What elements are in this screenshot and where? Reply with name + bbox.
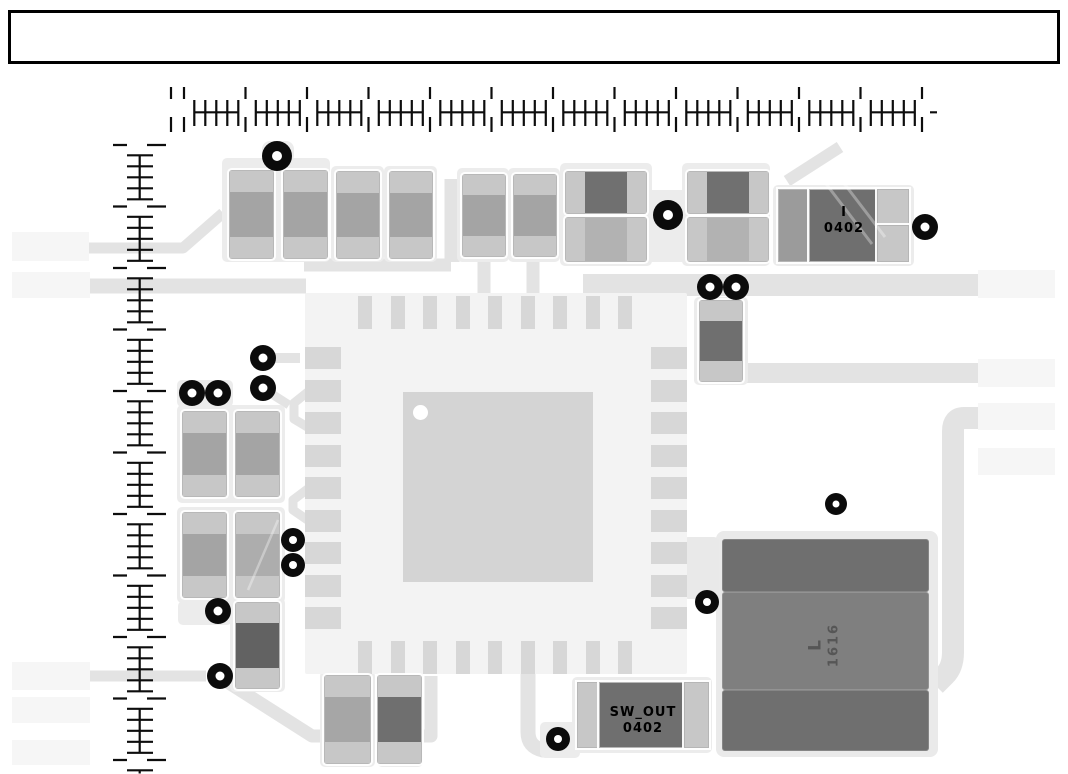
chip-cap-c4: [390, 172, 432, 258]
body: [337, 193, 379, 237]
ic-pad-bottom: [423, 641, 437, 674]
ic-pin1-marker: [413, 405, 428, 420]
chip-cap-ls1: [236, 603, 279, 688]
body: [707, 172, 749, 213]
pad: [627, 218, 646, 261]
pad: [284, 237, 327, 258]
ic-pad-right: [651, 607, 687, 629]
trace-left-1: [89, 213, 223, 248]
via: [205, 380, 231, 406]
body: [236, 534, 279, 576]
via: [281, 553, 305, 577]
via-hole: [706, 283, 715, 292]
ic-pad-left: [305, 380, 341, 402]
right-pad-block-3: [978, 403, 1055, 430]
body: [514, 195, 556, 236]
comp-i-right-pad-1: [878, 190, 908, 225]
body: [183, 433, 226, 475]
left-pad-block-4: [12, 697, 90, 723]
via: [653, 200, 683, 230]
pad: [230, 237, 273, 258]
via-hole: [921, 223, 930, 232]
component-label-inductor-1616: L 1616: [805, 623, 843, 667]
inductor-pad-bottom: [722, 690, 929, 751]
via: [825, 493, 847, 515]
body: [463, 195, 505, 236]
chip-cap-c1: [230, 171, 273, 258]
chip-cap-l2a: [183, 513, 226, 597]
ic-pad-left: [305, 412, 341, 434]
ic-pad-left: [305, 445, 341, 467]
label-line: SW_OUT: [610, 705, 677, 721]
pad: [337, 237, 379, 258]
pad: [700, 361, 742, 381]
ic-die-body: [403, 392, 593, 582]
pad: [236, 603, 279, 623]
ic-pad-right: [651, 477, 687, 499]
via-hole: [188, 389, 197, 398]
ic-pad-right: [651, 412, 687, 434]
chip-cap-l1a: [183, 412, 226, 496]
label-line: 0402: [824, 221, 864, 237]
ic-pad-right: [651, 445, 687, 467]
ic-pad-right: [651, 347, 687, 369]
ic-pad-top: [618, 296, 632, 329]
via: [262, 141, 292, 171]
pad: [236, 668, 279, 688]
right-pad-block-1: [978, 270, 1055, 298]
body: [390, 193, 432, 237]
inductor-pad-top: [722, 539, 929, 592]
chip-cap-v1: [700, 301, 742, 381]
pad: [700, 301, 742, 321]
pad: [236, 412, 279, 433]
comp-i-right-pad-2: [878, 226, 908, 261]
body: [284, 192, 327, 237]
via-hole: [732, 283, 741, 292]
ruler-vertical: [113, 145, 166, 774]
via: [912, 214, 938, 240]
ic-pad-left: [305, 575, 341, 597]
sw-out-right-pad: [685, 683, 708, 747]
ic-pad-bottom: [391, 641, 405, 674]
ic-pad-top: [553, 296, 567, 329]
pad: [688, 172, 707, 213]
chip-cap-l2b: [236, 513, 279, 597]
pad: [325, 742, 370, 763]
pad: [749, 172, 768, 213]
left-pad-block-2: [12, 272, 90, 298]
pad: [514, 236, 556, 256]
pad: [378, 742, 421, 763]
via: [695, 590, 719, 614]
pad: [236, 475, 279, 496]
right-pad-block-2: [978, 359, 1055, 387]
comp-i-left-pad: [779, 190, 810, 261]
via: [207, 663, 233, 689]
pad: [688, 218, 707, 261]
pad: [514, 175, 556, 195]
ic-pad-right: [651, 542, 687, 564]
via: [281, 528, 305, 552]
label-line: 0402: [610, 721, 677, 737]
pad: [463, 175, 505, 195]
chip-res-h4: [688, 218, 768, 261]
via: [205, 598, 231, 624]
label-line: L: [805, 639, 826, 651]
pad: [325, 676, 370, 697]
chip-cap-c2: [284, 171, 327, 258]
label-line: I: [824, 205, 864, 221]
ic-pad-left: [305, 542, 341, 564]
ic-pad-bottom: [488, 641, 502, 674]
body: [700, 321, 742, 361]
via: [179, 380, 205, 406]
body: [585, 218, 627, 261]
pad: [390, 172, 432, 193]
via: [250, 345, 276, 371]
via: [250, 375, 276, 401]
left-pad-block-3: [12, 662, 90, 690]
via-hole: [259, 384, 268, 393]
title-block: [8, 10, 1060, 64]
pad: [183, 475, 226, 496]
via-hole: [272, 151, 282, 161]
trace-diag-comp-i: [787, 147, 840, 181]
ic-pad-bottom: [456, 641, 470, 674]
component-label-i-0402: I 0402: [824, 205, 864, 238]
left-pad-block-5: [12, 740, 90, 765]
left-pad-block-1: [12, 232, 89, 261]
right-pad-block-4: [978, 448, 1055, 475]
ic-pad-left: [305, 477, 341, 499]
pad: [284, 171, 327, 192]
pcb-layout-canvas: I 0402 SW_OUT 0402 L 1616: [0, 0, 1068, 774]
chip-cap-c5: [463, 175, 505, 256]
pad: [566, 218, 585, 261]
ic-pad-top: [423, 296, 437, 329]
via-hole: [289, 561, 297, 569]
ic-pad-bottom: [553, 641, 567, 674]
ic-pad-left: [305, 347, 341, 369]
chip-cap-l1b: [236, 412, 279, 496]
pad: [390, 237, 432, 258]
ic-pad-top: [521, 296, 535, 329]
pad: [749, 218, 768, 261]
ic-pad-right: [651, 510, 687, 532]
pad: [183, 576, 226, 597]
ic-pad-bottom: [586, 641, 600, 674]
ic-pad-right: [651, 380, 687, 402]
ic-pad-top: [391, 296, 405, 329]
body: [378, 697, 421, 742]
via-hole: [214, 389, 223, 398]
pad: [230, 171, 273, 192]
ic-pad-left: [305, 607, 341, 629]
pad: [236, 576, 279, 597]
component-label-sw-out-0402: SW_OUT 0402: [610, 705, 677, 738]
ic-pad-left: [305, 510, 341, 532]
ic-pad-bottom: [358, 641, 372, 674]
label-line: 1616: [827, 623, 843, 667]
pad: [183, 412, 226, 433]
via-hole: [833, 501, 840, 508]
via: [546, 727, 570, 751]
chip-cap-c6: [514, 175, 556, 256]
chip-cap-ba: [325, 676, 370, 763]
body: [183, 534, 226, 576]
via-hole: [216, 672, 225, 681]
pad: [463, 236, 505, 256]
chip-res-h1: [566, 172, 646, 213]
via: [697, 274, 723, 300]
via-hole: [554, 735, 562, 743]
chip-res-h2: [566, 218, 646, 261]
ic-pad-top: [358, 296, 372, 329]
ic-pad-right: [651, 575, 687, 597]
body: [585, 172, 627, 213]
sw-out-left-pad: [578, 683, 600, 747]
via-hole: [259, 354, 268, 363]
trace-right-drop: [935, 418, 982, 685]
ic-pad-bottom: [618, 641, 632, 674]
ic-pad-top: [456, 296, 470, 329]
via: [723, 274, 749, 300]
via-hole: [663, 210, 673, 220]
pad: [183, 513, 226, 534]
body: [707, 218, 749, 261]
pad: [566, 172, 585, 213]
ruler-horizontal: [171, 87, 937, 132]
via-hole: [289, 536, 297, 544]
chip-res-h3: [688, 172, 768, 213]
body: [236, 433, 279, 475]
ic-pad-bottom: [521, 641, 535, 674]
via-hole: [214, 607, 223, 616]
pad: [627, 172, 646, 213]
body: [325, 697, 370, 742]
chip-cap-bb: [378, 676, 421, 763]
body: [230, 192, 273, 237]
pad: [378, 676, 421, 697]
courtyard-inductor-left-tab: [683, 537, 719, 599]
pad: [236, 513, 279, 534]
body: [236, 623, 279, 668]
ic-pad-top: [586, 296, 600, 329]
ic-pad-top: [488, 296, 502, 329]
via-hole: [703, 598, 711, 606]
pad: [337, 172, 379, 193]
chip-cap-c3: [337, 172, 379, 258]
